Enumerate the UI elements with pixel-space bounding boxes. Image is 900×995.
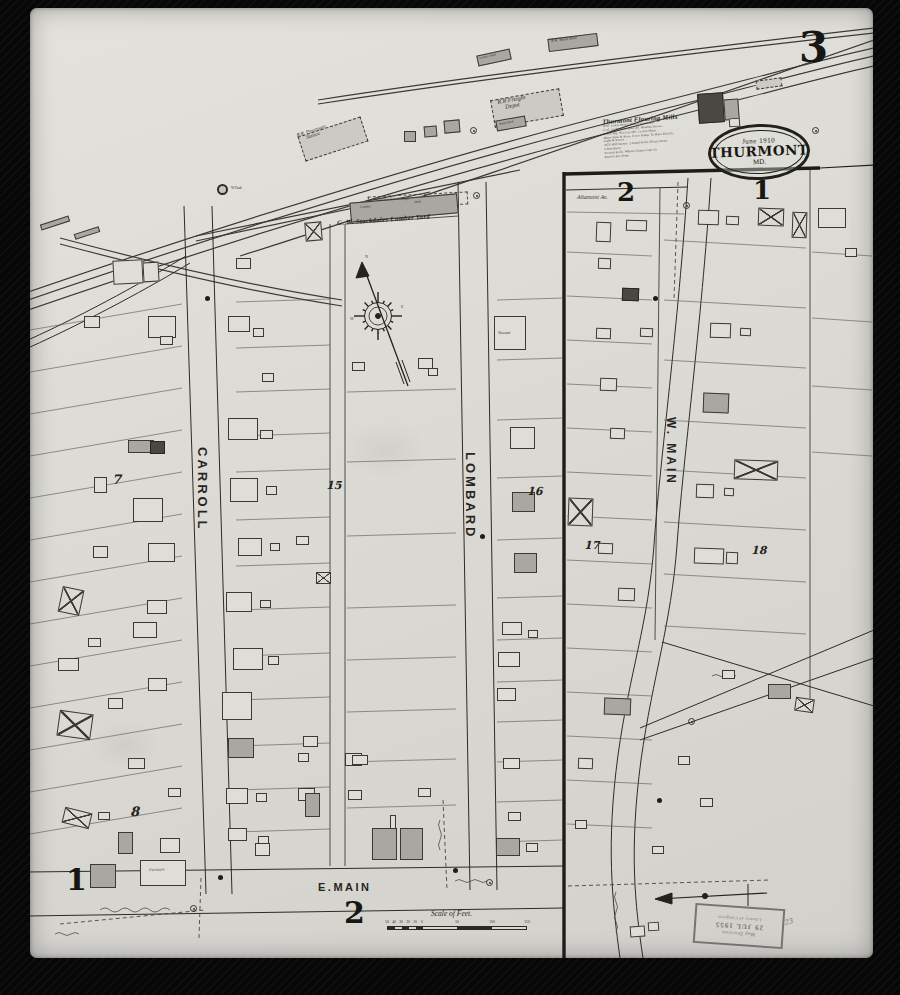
building	[305, 793, 320, 817]
building	[596, 328, 611, 340]
map-world: 321127815161718CARROLLLOMBARDW. MAINE.MA…	[30, 8, 873, 958]
scale-major-label: 100	[489, 920, 494, 924]
building	[94, 477, 107, 493]
building	[845, 248, 857, 257]
building	[236, 258, 251, 269]
building	[226, 788, 248, 804]
circled-marker-icon	[486, 879, 493, 886]
building	[108, 698, 123, 709]
hydrant-dot-icon	[205, 296, 210, 301]
building	[496, 838, 520, 856]
building	[390, 815, 396, 829]
building	[626, 220, 647, 232]
building	[112, 259, 143, 285]
lumber-label: Lumber	[360, 205, 371, 209]
building	[84, 316, 100, 328]
circled-marker-icon	[470, 127, 477, 134]
building	[622, 288, 639, 302]
building	[93, 546, 108, 558]
building	[222, 692, 252, 720]
building	[128, 758, 145, 769]
adjacent-sheet-2: 2	[617, 179, 635, 207]
building	[758, 208, 785, 227]
building	[226, 592, 252, 612]
building	[256, 793, 267, 802]
building	[724, 488, 734, 496]
building	[792, 212, 808, 239]
building	[88, 638, 101, 647]
photo-frame: 321127815161718CARROLLLOMBARDW. MAINE.MA…	[0, 0, 900, 995]
circled-marker-icon	[688, 718, 695, 725]
building	[58, 658, 79, 671]
building	[598, 258, 611, 269]
stamp-state: MD.	[753, 159, 766, 166]
scale-minor-label: 10	[413, 920, 417, 924]
building	[133, 498, 163, 522]
building	[722, 670, 735, 679]
building	[268, 656, 279, 665]
library-stamp: Map Division 29 JUL 1955 Library of Cong…	[693, 903, 786, 949]
building	[710, 323, 732, 339]
building	[258, 836, 269, 844]
furniture: Furniture	[149, 867, 165, 872]
hydrant-dot-icon	[480, 534, 485, 539]
building	[400, 828, 423, 860]
circled-marker-icon	[683, 202, 690, 209]
building	[352, 755, 368, 765]
building	[678, 756, 690, 765]
building	[260, 600, 271, 608]
scale-minor-label: 30	[399, 920, 403, 924]
building	[255, 843, 270, 856]
building	[118, 832, 133, 854]
compass-letter-e: E	[401, 305, 403, 309]
vacant: Vacant	[498, 331, 510, 336]
building	[528, 630, 538, 638]
street-lombard: LOMBARD	[463, 452, 477, 539]
water-tank-icon	[217, 184, 228, 195]
building	[303, 736, 318, 747]
building	[428, 368, 438, 376]
building	[497, 688, 516, 701]
bottom-sheet-1: 1	[66, 864, 87, 896]
building	[404, 131, 416, 142]
building	[498, 652, 520, 667]
scale-minor-label: 0	[421, 920, 423, 924]
block-7: 7	[112, 473, 121, 487]
building	[90, 864, 116, 888]
building	[228, 738, 254, 758]
street-altamont: Altamont Av.	[577, 194, 607, 200]
building	[148, 543, 175, 562]
building	[726, 216, 739, 225]
building	[140, 860, 186, 886]
building	[260, 430, 273, 439]
building	[233, 648, 263, 670]
scale-title: Scale of Feet.	[431, 909, 472, 918]
street-e-main: E.MAIN	[318, 882, 372, 894]
block-18: 18	[751, 545, 766, 557]
building	[610, 428, 625, 440]
building	[526, 843, 538, 852]
compass-letter-n: N	[365, 255, 368, 259]
street-w-main: W. MAIN	[664, 417, 677, 486]
building	[508, 812, 521, 821]
block-17: 17	[584, 540, 599, 552]
building	[228, 418, 258, 440]
building	[794, 697, 815, 714]
building	[230, 478, 258, 502]
circled-marker-icon	[473, 192, 480, 199]
water-tank: W.Tank	[231, 187, 242, 191]
building	[596, 222, 612, 243]
building	[502, 622, 522, 635]
building	[630, 925, 646, 937]
bottom-sheet-2: 2	[344, 897, 365, 929]
building	[228, 316, 250, 332]
building	[703, 393, 730, 414]
building	[575, 820, 587, 829]
building	[818, 208, 846, 228]
building	[696, 484, 714, 499]
sheet-number: 3	[799, 26, 828, 71]
building	[598, 543, 613, 555]
compass-letter-w: W	[350, 317, 354, 321]
building	[296, 536, 309, 545]
building	[726, 552, 738, 564]
building	[424, 125, 438, 137]
scale-minor-label: 50	[385, 920, 389, 924]
building	[618, 588, 635, 602]
building	[148, 678, 167, 691]
building	[640, 328, 653, 337]
building	[740, 328, 751, 336]
building	[316, 572, 331, 584]
building	[304, 221, 323, 241]
hydrant-dot-icon	[653, 296, 658, 301]
building	[160, 336, 173, 345]
building	[578, 758, 593, 770]
scale-bar-graphic	[387, 926, 527, 930]
building	[150, 441, 165, 454]
building	[56, 710, 93, 740]
building	[648, 922, 660, 932]
town-date-stamp-inner: June 1910 THURMONT MD.	[713, 128, 804, 175]
building	[270, 543, 280, 551]
building	[262, 373, 274, 382]
building	[503, 758, 520, 769]
building	[133, 622, 157, 638]
building	[168, 788, 181, 797]
hydrant-dot-icon	[218, 875, 223, 880]
building	[568, 498, 594, 527]
scale-minor-label: 40	[392, 920, 396, 924]
map-sheet: 321127815161718CARROLLLOMBARDW. MAINE.MA…	[30, 8, 873, 958]
building	[698, 210, 720, 226]
building	[700, 798, 713, 807]
circled-marker-icon	[190, 905, 197, 912]
building	[443, 119, 460, 133]
building	[352, 362, 365, 371]
building	[98, 812, 110, 820]
building	[600, 378, 617, 392]
building	[160, 838, 180, 853]
building	[652, 846, 664, 854]
building	[238, 538, 262, 556]
building	[510, 427, 535, 449]
building	[142, 262, 159, 283]
building	[148, 316, 176, 338]
hydrant-dot-icon	[657, 798, 662, 803]
scale-major-label: 150	[524, 920, 529, 924]
building	[298, 753, 309, 762]
hydrant-dot-icon	[453, 868, 458, 873]
building	[147, 600, 167, 614]
flouring-mills-notes: Thurmont Flouring Mills W.M. Lewis Prop'…	[602, 110, 725, 160]
scale-major-label: 50	[455, 920, 459, 924]
building	[604, 698, 632, 716]
building	[768, 684, 791, 699]
street-carroll: CARROLL	[195, 447, 209, 532]
building	[694, 547, 725, 564]
building	[372, 828, 397, 860]
block-15: 15	[326, 480, 341, 492]
building	[734, 459, 779, 481]
building	[253, 328, 264, 337]
circled-marker-icon	[812, 127, 819, 134]
building	[418, 788, 431, 797]
block-16: 16	[527, 486, 542, 498]
block-8: 8	[130, 805, 139, 819]
shed-label: Shed	[414, 201, 421, 205]
compass-letter-s: S	[377, 331, 379, 335]
building	[514, 553, 537, 573]
building	[348, 790, 362, 800]
building	[266, 486, 277, 495]
scale-minor-label: 20	[406, 920, 410, 924]
adjacent-sheet-1: 1	[753, 177, 771, 205]
building	[228, 828, 247, 841]
